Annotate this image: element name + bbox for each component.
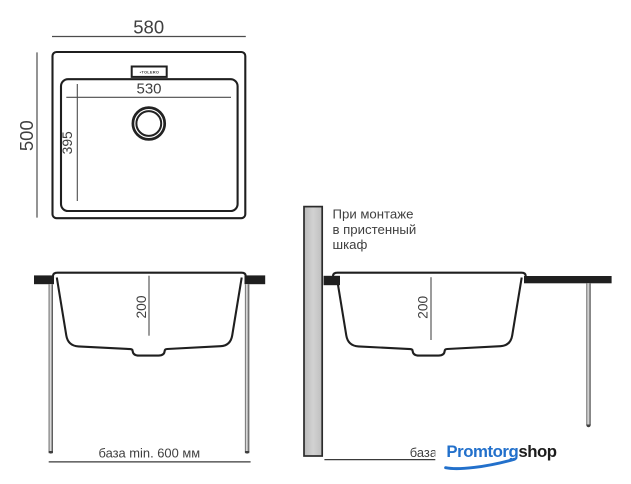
svg-text:200: 200 [416,295,431,318]
svg-text:шкаф: шкаф [333,237,368,252]
svg-text:Promtorgshop: Promtorgshop [446,442,556,461]
svg-text:395: 395 [60,131,75,154]
svg-text:▪TOLERO: ▪TOLERO [140,70,159,75]
svg-text:200: 200 [134,295,149,318]
svg-text:580: 580 [133,16,164,37]
svg-text:в пристенный: в пристенный [333,222,417,237]
svg-text:база min. 600 мм: база min. 600 мм [99,445,201,460]
svg-text:500: 500 [16,120,37,151]
svg-text:530: 530 [136,81,161,98]
svg-text:При монтаже: При монтаже [333,207,414,222]
